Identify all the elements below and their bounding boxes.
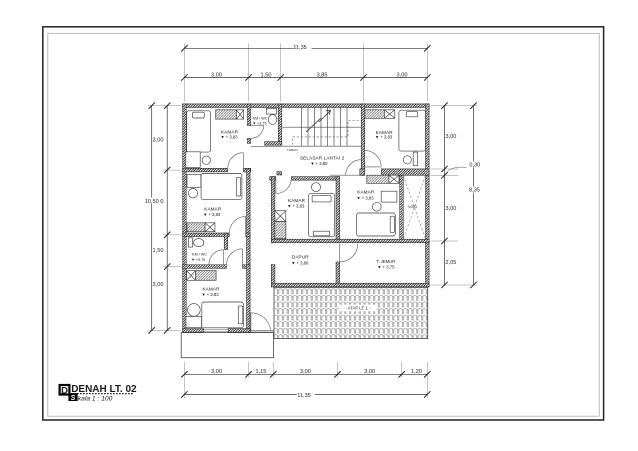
svg-text:▼ +3,75: ▼ +3,75 — [191, 258, 205, 262]
svg-text:1,50: 1,50 — [261, 72, 272, 78]
svg-text:D: D — [61, 385, 68, 396]
svg-text:2,05: 2,05 — [446, 260, 457, 266]
svg-text:3,00: 3,00 — [153, 282, 164, 288]
svg-text:▼ + 3,83: ▼ + 3,83 — [201, 292, 219, 297]
svg-text:▼ + 3,75: ▼ + 3,75 — [377, 265, 395, 270]
svg-text:3,85: 3,85 — [317, 72, 328, 78]
svg-text:3,00: 3,00 — [300, 369, 311, 375]
svg-text:TURUN: TURUN — [287, 148, 298, 152]
svg-text:T. JEMUR: T. JEMUR — [376, 259, 395, 264]
svg-text:3,00: 3,00 — [397, 72, 408, 78]
svg-text:0,30: 0,30 — [469, 163, 480, 169]
svg-text:DAPUR: DAPUR — [292, 255, 309, 260]
svg-text:▼ + 3,83: ▼ + 3,83 — [356, 196, 374, 201]
svg-text:▼ + 3,83: ▼ + 3,83 — [203, 212, 221, 217]
svg-text:3,00: 3,00 — [211, 369, 222, 375]
svg-text:▼ + 3,83: ▼ + 3,83 — [375, 135, 393, 140]
svg-text:kala 1 : 100: kala 1 : 100 — [78, 396, 113, 403]
svg-text:3,00: 3,00 — [153, 138, 164, 144]
svg-text:▼ + 3,83: ▼ + 3,83 — [287, 203, 305, 208]
svg-text:KM / WC: KM / WC — [253, 117, 268, 121]
svg-text:KAMAR: KAMAR — [204, 207, 222, 212]
svg-text:KM / WC: KM / WC — [192, 253, 207, 257]
svg-text:KAMAR: KAMAR — [357, 189, 375, 194]
svg-text:1,50: 1,50 — [153, 248, 164, 254]
svg-text:3,00: 3,00 — [446, 134, 457, 140]
svg-text:8,35: 8,35 — [469, 188, 480, 194]
svg-text:1,15: 1,15 — [255, 369, 266, 375]
svg-text:KAMAR: KAMAR — [202, 287, 220, 292]
svg-text:3,00: 3,00 — [364, 369, 375, 375]
svg-text:1,20: 1,20 — [411, 369, 422, 375]
svg-text:3,00: 3,00 — [446, 206, 457, 212]
svg-text:▼ + 3,83: ▼ + 3,83 — [220, 134, 238, 139]
svg-text:3,00: 3,00 — [211, 72, 222, 78]
svg-text:SELASAR LANTAI 2: SELASAR LANTAI 2 — [300, 156, 345, 161]
svg-text:▼ + 3,80: ▼ + 3,80 — [310, 161, 328, 166]
svg-text:10,50: 10,50 — [145, 199, 159, 205]
svg-text:11,35: 11,35 — [297, 393, 311, 399]
svg-text:▼ +3,75: ▼ +3,75 — [252, 122, 266, 126]
svg-text:11,35: 11,35 — [293, 45, 307, 51]
svg-text:S: S — [71, 395, 76, 402]
svg-text:VOID: VOID — [408, 205, 417, 209]
svg-text:- ATAP LT. 1 -: - ATAP LT. 1 - — [345, 306, 371, 311]
svg-text:▼ + 3,80: ▼ + 3,80 — [291, 260, 309, 265]
